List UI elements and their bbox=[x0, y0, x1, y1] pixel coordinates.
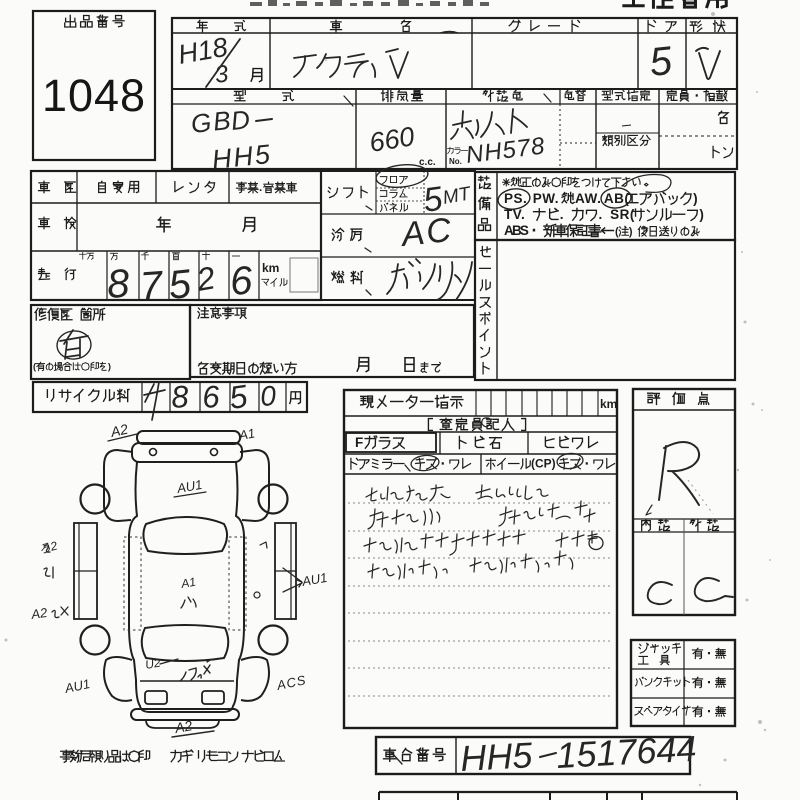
svg-text:F: F bbox=[355, 435, 364, 450]
svg-text:A2: A2 bbox=[173, 717, 194, 736]
svg-text:0: 0 bbox=[259, 380, 277, 412]
svg-text:AC: AC bbox=[398, 211, 455, 254]
svg-text:km: km bbox=[600, 397, 617, 411]
svg-text:A1: A1 bbox=[237, 425, 256, 443]
svg-text:No.: No. bbox=[449, 157, 462, 166]
svg-text:AB(: AB( bbox=[604, 191, 630, 206]
svg-text:7: 7 bbox=[139, 263, 166, 309]
svg-text:NH578: NH578 bbox=[464, 132, 546, 169]
svg-text:PW.: PW. bbox=[533, 191, 559, 206]
svg-text:GB: GB bbox=[189, 105, 233, 139]
svg-text:): ) bbox=[629, 226, 633, 238]
svg-text:3: 3 bbox=[213, 60, 231, 89]
svg-text:5: 5 bbox=[227, 378, 250, 416]
svg-text:HH5: HH5 bbox=[210, 139, 273, 175]
svg-text:km: km bbox=[262, 261, 279, 275]
svg-text:): ) bbox=[108, 362, 111, 372]
svg-text:5: 5 bbox=[647, 39, 674, 85]
svg-text:1048: 1048 bbox=[42, 70, 146, 121]
svg-text:8: 8 bbox=[170, 379, 190, 415]
svg-text:A1: A1 bbox=[179, 575, 197, 592]
svg-text:(: ( bbox=[615, 226, 619, 238]
svg-text:8: 8 bbox=[106, 261, 132, 306]
svg-text:ABS: ABS bbox=[504, 223, 529, 238]
svg-text:1517644: 1517644 bbox=[555, 728, 697, 776]
svg-text:U2: U2 bbox=[144, 655, 162, 672]
svg-text:ACS: ACS bbox=[275, 672, 308, 693]
svg-text:): ) bbox=[699, 207, 704, 222]
svg-text:2: 2 bbox=[193, 259, 218, 298]
svg-text:D: D bbox=[229, 104, 251, 136]
svg-text:AU1: AU1 bbox=[63, 676, 92, 696]
svg-text:6: 6 bbox=[229, 258, 255, 303]
svg-text:MT: MT bbox=[441, 183, 473, 209]
svg-text:6: 6 bbox=[201, 379, 221, 415]
svg-text:SR(: SR( bbox=[610, 207, 635, 222]
svg-text:PS.: PS. bbox=[504, 191, 527, 206]
svg-text:.: . bbox=[259, 182, 263, 194]
svg-text:): ) bbox=[693, 191, 698, 206]
svg-text:HH5: HH5 bbox=[459, 734, 534, 779]
svg-text:.: . bbox=[598, 207, 602, 222]
svg-text:5: 5 bbox=[166, 262, 193, 308]
svg-text:660: 660 bbox=[367, 121, 416, 158]
svg-text:AU1: AU1 bbox=[300, 570, 329, 589]
svg-text:AW.: AW. bbox=[575, 191, 601, 206]
svg-text:A2: A2 bbox=[29, 605, 49, 622]
svg-text:(CP): (CP) bbox=[531, 457, 556, 471]
svg-text:.: . bbox=[560, 207, 564, 222]
